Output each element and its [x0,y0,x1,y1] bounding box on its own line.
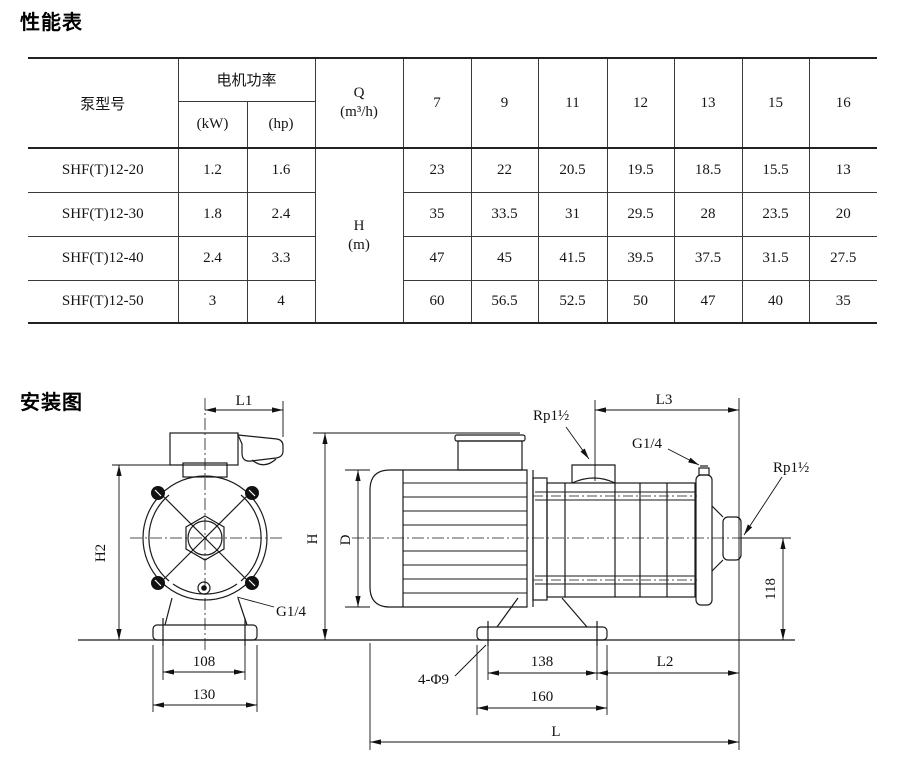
cell-hp: 4 [247,280,315,323]
installation-drawing: L1 H2 108 130 G1/4 [0,370,900,767]
dim-label-d: D [338,534,354,545]
leader-line-rp-suction [566,427,589,459]
leader-line-g14-vent [668,449,699,465]
col-header-flow-11: 11 [538,58,607,148]
cell-hp: 3.3 [247,236,315,280]
cell-head: 35 [403,192,471,236]
pump-side-view-drawing [352,435,760,646]
cell-head: 31.5 [742,236,809,280]
cell-model: SHF(T)12-30 [28,192,178,236]
drain-plug-center [201,585,207,591]
cell-kw: 1.2 [178,148,247,192]
terminal-box-lid [455,435,525,441]
cell-model: SHF(T)12-20 [28,148,178,192]
dim-label-108: 108 [193,654,216,670]
foot-slant-left [497,598,518,627]
pump-front-view-drawing [130,398,283,651]
cell-kw: 3 [178,280,247,323]
cell-head: 31 [538,192,607,236]
datasheet-page: 性能表 泵型号 电机功率 Q (m³/h) 7 9 11 12 13 15 16… [0,0,900,767]
col-header-hp: (hp) [247,101,315,148]
dim-label-138: 138 [531,654,554,670]
dim-label-l1: L1 [236,393,253,409]
table-row: SHF(T)12-40 2.4 3.3 47 45 41.5 39.5 37.5… [28,236,877,280]
cell-head: 20 [809,192,877,236]
conduit-spout [238,435,283,461]
cell-head: 28 [674,192,742,236]
side-view-labels: Rp1½ G1/4 Rp1½ L3 H D 118 4-Φ9 138 160 L… [305,392,809,740]
label-bolt-holes: 4-Φ9 [418,672,449,688]
cell-head: 33.5 [471,192,538,236]
cell-head: 13 [809,148,877,192]
cell-head: 47 [674,280,742,323]
cell-head: 29.5 [607,192,674,236]
col-header-model: 泵型号 [28,58,178,148]
dim-label-l3: L3 [656,392,673,408]
cell-head: 39.5 [607,236,674,280]
col-header-kw: (kW) [178,101,247,148]
cell-head: 37.5 [674,236,742,280]
foot-slant-right [238,598,247,625]
col-header-flow-12: 12 [607,58,674,148]
cell-head: 18.5 [674,148,742,192]
cell-head: 23 [403,148,471,192]
dim-label-130: 130 [193,687,216,703]
leader-line-rp-discharge [744,477,782,535]
dim-label-118: 118 [763,578,779,600]
label-g14-drain: G1/4 [276,604,307,620]
table-row: SHF(T)12-30 1.8 2.4 35 33.5 31 29.5 28 2… [28,192,877,236]
cell-head: 47 [403,236,471,280]
performance-table-title: 性能表 [20,6,83,35]
q-unit: (m³/h) [316,103,403,122]
cell-hp: 2.4 [247,192,315,236]
col-header-motor-power: 电机功率 [178,58,315,101]
foot-slant-right [562,598,587,627]
table-row: SHF(T)12-20 1.2 1.6 H (m) 23 22 20.5 19.… [28,148,877,192]
cell-head: 45 [471,236,538,280]
discharge-port [723,517,741,560]
cell-head: 19.5 [607,148,674,192]
terminal-box [170,433,238,465]
discharge-cone-top [712,506,723,517]
cell-head: 60 [403,280,471,323]
dim-label-h: H [305,533,321,544]
h-unit: (m) [316,236,403,255]
cell-head: 40 [742,280,809,323]
leader-line-g14 [237,597,274,607]
cell-head: 50 [607,280,674,323]
suction-port-bowl [572,478,615,483]
dim-label-l2: L2 [657,654,674,670]
cell-model: SHF(T)12-40 [28,236,178,280]
cell-head: 27.5 [809,236,877,280]
dim-label-160: 160 [531,689,554,705]
pump-head-flange [696,475,712,605]
cell-head-label: H (m) [315,148,403,323]
cell-head: 22 [471,148,538,192]
base-plate [477,627,607,640]
cell-head: 15.5 [742,148,809,192]
cell-head: 23.5 [742,192,809,236]
table-row: SHF(T)12-50 3 4 60 56.5 52.5 50 47 40 35 [28,280,877,323]
col-header-flow-16: 16 [809,58,877,148]
col-header-flow: Q (m³/h) [315,58,403,148]
dim-label-l: L [551,724,560,740]
col-header-flow-15: 15 [742,58,809,148]
terminal-box-side [458,441,522,470]
h-symbol: H [316,217,403,236]
cell-kw: 2.4 [178,236,247,280]
cell-head: 20.5 [538,148,607,192]
cell-head: 41.5 [538,236,607,280]
col-header-flow-9: 9 [471,58,538,148]
discharge-cone-bottom [712,560,723,571]
foot-slant-left [165,598,172,625]
front-view-labels: L1 H2 108 130 G1/4 [93,393,307,703]
cell-model: SHF(T)12-50 [28,280,178,323]
cell-head: 35 [809,280,877,323]
cell-hp: 1.6 [247,148,315,192]
motor-body [370,470,527,607]
cell-head: 52.5 [538,280,607,323]
col-header-flow-7: 7 [403,58,471,148]
col-header-flow-13: 13 [674,58,742,148]
label-rp-suction: Rp1½ [533,408,569,424]
cell-head: 56.5 [471,280,538,323]
leader-line-holes [455,645,486,676]
performance-table: 泵型号 电机功率 Q (m³/h) 7 9 11 12 13 15 16 (kW… [28,57,877,324]
label-g14-vent: G1/4 [632,436,663,452]
cell-kw: 1.8 [178,192,247,236]
dim-label-h2: H2 [93,544,109,562]
label-rp-discharge: Rp1½ [773,460,809,476]
vent-plug [699,468,709,475]
q-symbol: Q [316,84,403,103]
